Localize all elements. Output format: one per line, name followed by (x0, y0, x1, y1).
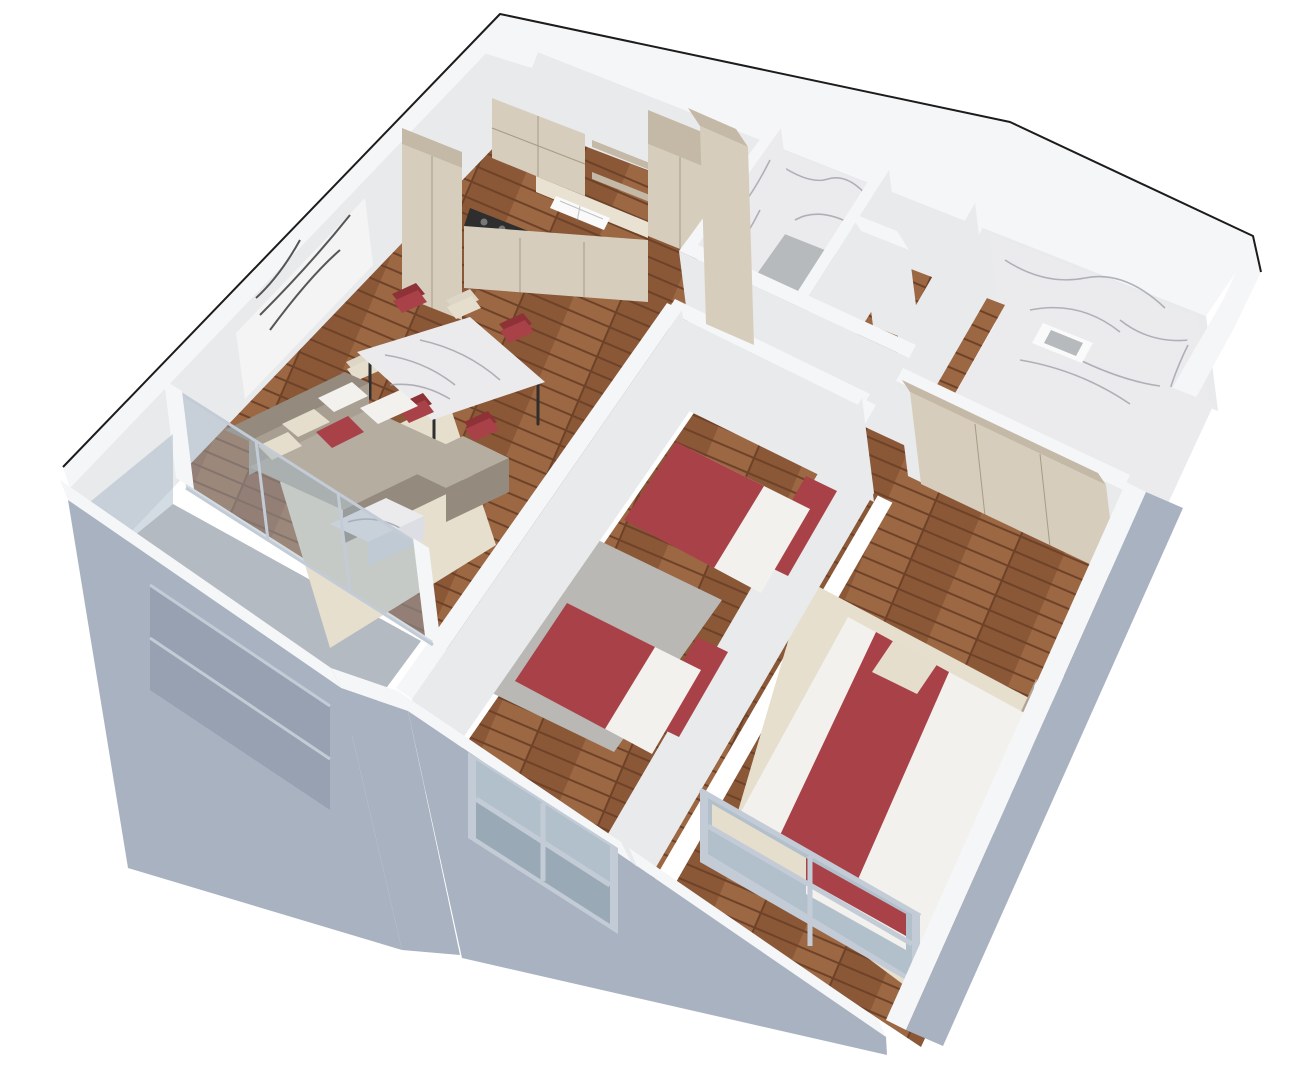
floor-plan-3d-render (0, 0, 1292, 1077)
apartment-cutaway-scene (0, 0, 1292, 1077)
